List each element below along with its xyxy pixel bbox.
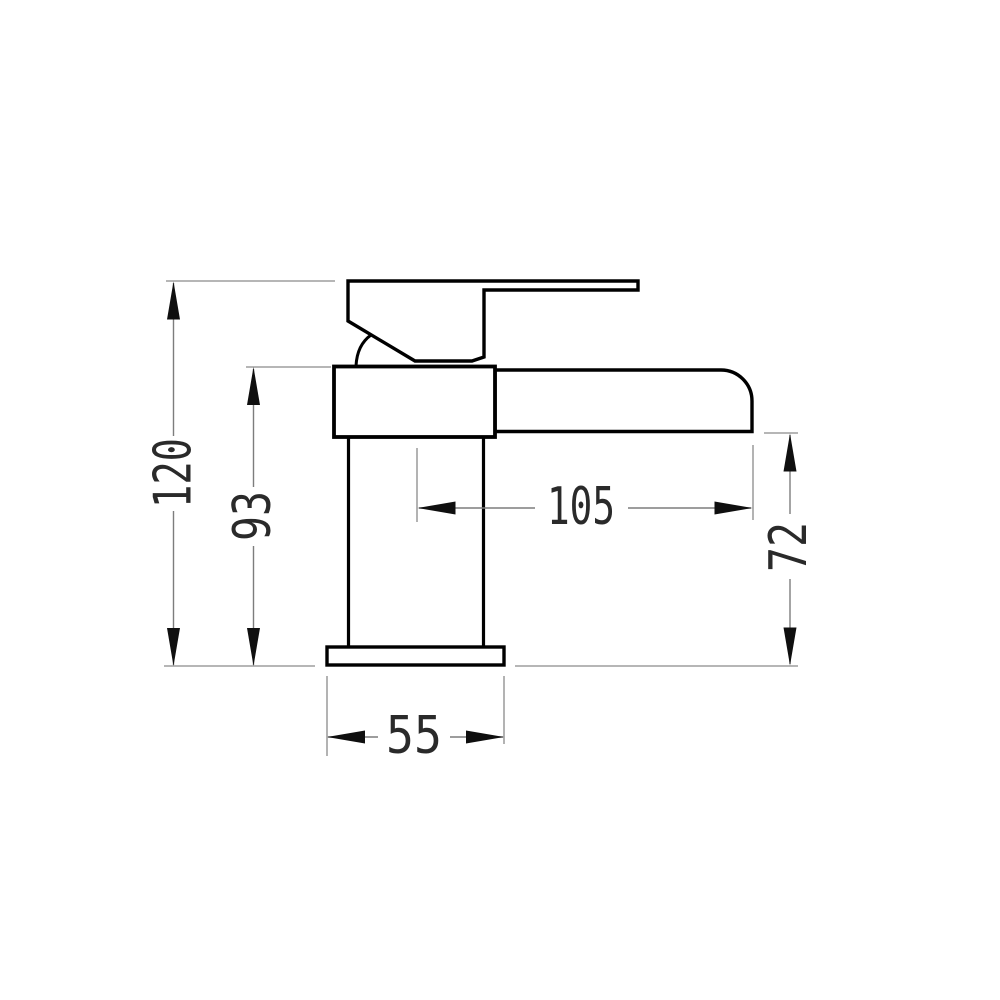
arrow-down-icon	[167, 628, 180, 666]
tap-spout	[495, 370, 752, 432]
arrow-up-icon	[167, 282, 180, 320]
tap-handle	[348, 281, 638, 361]
dimension-spout-height: 72	[759, 434, 819, 666]
dimension-base-width: 55	[327, 706, 504, 766]
technical-drawing: 120 93 105 72 55	[0, 0, 1000, 1000]
arrow-down-icon	[247, 628, 260, 666]
arrow-right-icon	[466, 731, 504, 744]
tap-body-column	[349, 437, 484, 647]
dimension-label-spout-reach: 105	[547, 477, 615, 537]
arrow-down-icon	[784, 628, 797, 666]
tap-handle-pivot-arc	[356, 335, 371, 366]
arrow-up-icon	[247, 367, 260, 405]
tap-base-plate	[327, 647, 504, 665]
drawing-page: 120 93 105 72 55	[0, 0, 1000, 1000]
dimension-overall-height: 120	[144, 282, 204, 667]
dimension-spout-reach: 105	[418, 477, 753, 537]
dimension-body-height: 93	[223, 367, 283, 666]
arrow-left-icon	[327, 731, 365, 744]
tap-collar	[334, 367, 495, 438]
tap-outline	[327, 281, 752, 665]
dimension-label-overall-height: 120	[144, 438, 204, 508]
dimension-label-base-width: 55	[386, 706, 442, 766]
arrow-right-icon	[715, 502, 753, 515]
arrow-up-icon	[784, 434, 797, 472]
dimension-label-spout-height: 72	[759, 522, 819, 572]
dimension-label-body-height: 93	[223, 491, 283, 541]
arrow-left-icon	[418, 502, 456, 515]
